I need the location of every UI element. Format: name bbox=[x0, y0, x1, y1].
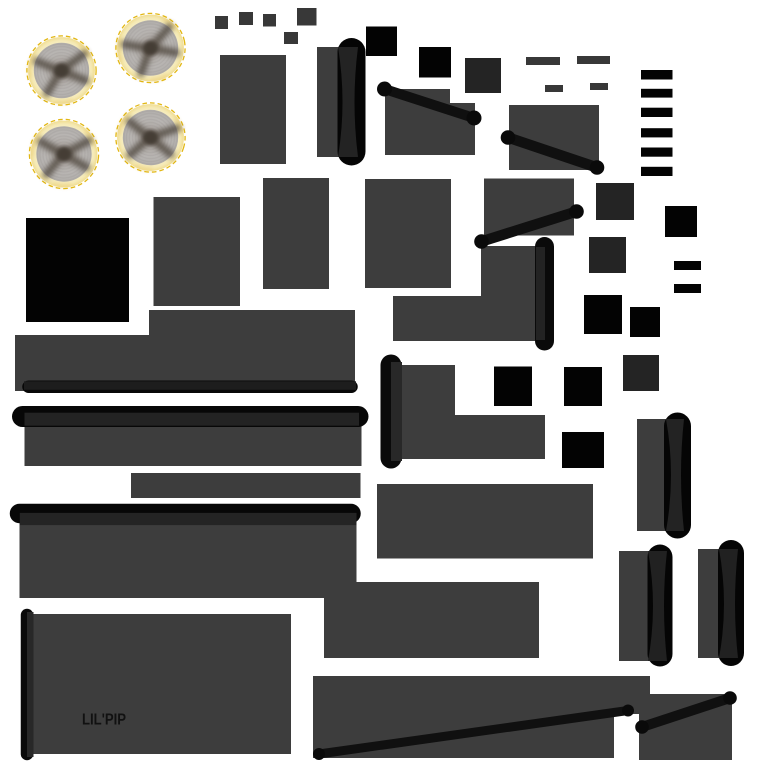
svg-text:LIL'PIP: LIL'PIP bbox=[82, 712, 126, 729]
